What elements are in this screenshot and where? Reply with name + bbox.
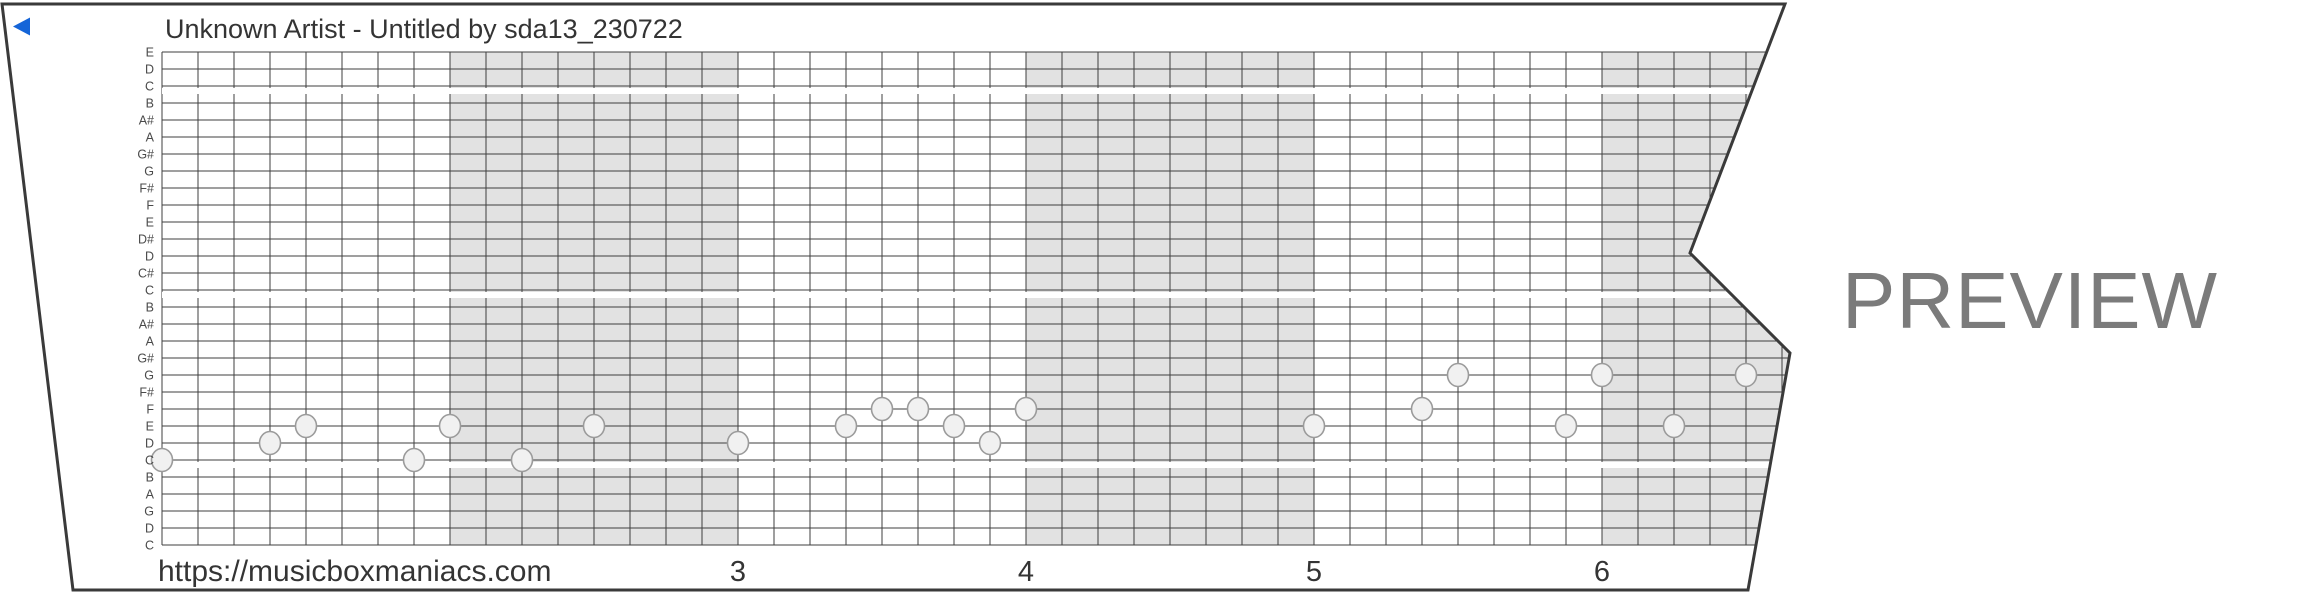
note-pin-f — [908, 398, 929, 421]
pitch-label: F — [146, 403, 154, 417]
pitch-label: G — [144, 505, 154, 519]
pitch-label: D# — [138, 233, 154, 247]
note-pin-c — [152, 449, 173, 472]
measure-number: 4 — [1018, 556, 1034, 588]
note-pin-g — [1592, 364, 1613, 387]
preview-watermark: PREVIEW — [1842, 256, 2218, 345]
pitch-label: F — [146, 199, 154, 213]
pitch-label: D — [145, 522, 154, 536]
note-pin-f — [1016, 398, 1037, 421]
measure-number: 3 — [730, 556, 746, 588]
strip-title: Unknown Artist - Untitled by sda13_23072… — [165, 14, 683, 44]
melody-preview[interactable]: EDCBA#AG#GF#FED#DC#CBA#AG#GF#FEDCBAGDC U… — [0, 0, 2310, 597]
note-pin-d — [260, 432, 281, 455]
note-pin-d — [980, 432, 1001, 455]
pitch-label: D — [145, 250, 154, 264]
pitch-label: A# — [139, 318, 154, 332]
pitch-label: C# — [138, 267, 154, 281]
pitch-label: G# — [137, 352, 154, 366]
pitch-label: B — [146, 301, 154, 315]
pitch-label: E — [146, 46, 154, 60]
note-pin-g — [1736, 364, 1757, 387]
pitch-label: C — [145, 539, 154, 553]
note-pin-d — [728, 432, 749, 455]
pitch-label: B — [146, 97, 154, 111]
pitch-label: A — [146, 335, 155, 349]
pitch-label: E — [146, 216, 154, 230]
note-pin-e — [440, 415, 461, 438]
note-pin-e — [1664, 415, 1685, 438]
pitch-label: C — [145, 284, 154, 298]
pitch-label: C — [145, 80, 154, 94]
note-pin-f — [1412, 398, 1433, 421]
note-pin-e — [836, 415, 857, 438]
pitch-label: C — [145, 454, 154, 468]
pitch-label: B — [146, 471, 154, 485]
measure-number: 5 — [1306, 556, 1322, 588]
pitch-label: D — [145, 437, 154, 451]
pitch-label: E — [146, 420, 154, 434]
pitch-label: D — [145, 63, 154, 77]
footer-url: https://musicboxmaniacs.com — [158, 555, 551, 588]
pitch-label: A# — [139, 114, 154, 128]
note-pin-e — [1556, 415, 1577, 438]
pitch-label: G — [144, 165, 154, 179]
note-pin-e — [1304, 415, 1325, 438]
note-pin-e — [944, 415, 965, 438]
pitch-label: A — [146, 131, 155, 145]
pitch-label: F# — [139, 182, 154, 196]
pitch-label: G — [144, 369, 154, 383]
octave-break-band — [162, 292, 1896, 298]
note-pin-f — [872, 398, 893, 421]
pitch-label: F# — [139, 386, 154, 400]
note-pin-e — [584, 415, 605, 438]
note-pin-g — [1448, 364, 1469, 387]
pitch-label: G# — [137, 148, 154, 162]
note-pin-c — [512, 449, 533, 472]
note-pin-e — [296, 415, 317, 438]
measure-number: 6 — [1594, 556, 1610, 588]
octave-break-band — [162, 88, 1896, 94]
pitch-label: A — [146, 488, 155, 502]
note-pin-c — [404, 449, 425, 472]
